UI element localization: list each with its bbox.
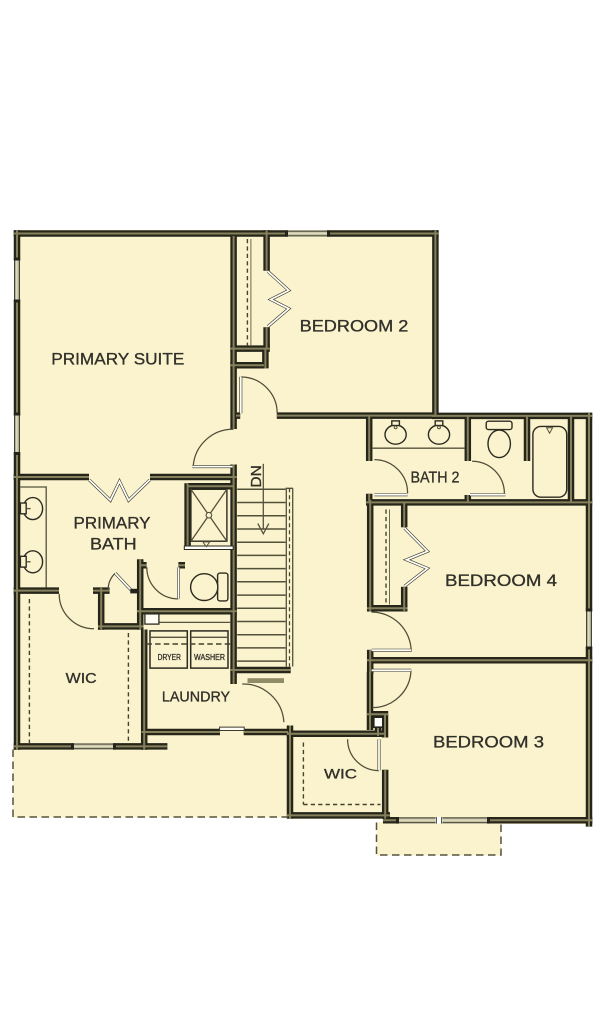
svg-text:DRYER: DRYER [158,653,181,662]
svg-text:PRIMARY SUITE: PRIMARY SUITE [51,350,184,369]
svg-text:WIC: WIC [66,671,97,687]
svg-text:BEDROOM 3: BEDROOM 3 [433,733,544,752]
svg-text:BEDROOM 4: BEDROOM 4 [445,571,557,590]
svg-text:PRIMARY: PRIMARY [74,514,151,533]
svg-text:WIC: WIC [324,766,357,782]
svg-text:LAUNDRY: LAUNDRY [162,690,231,706]
svg-text:BATH 2: BATH 2 [411,470,460,487]
svg-text:WASHER: WASHER [194,653,225,662]
svg-text:DN: DN [248,465,265,488]
svg-text:BATH: BATH [90,535,137,554]
svg-text:BEDROOM 2: BEDROOM 2 [300,317,409,336]
